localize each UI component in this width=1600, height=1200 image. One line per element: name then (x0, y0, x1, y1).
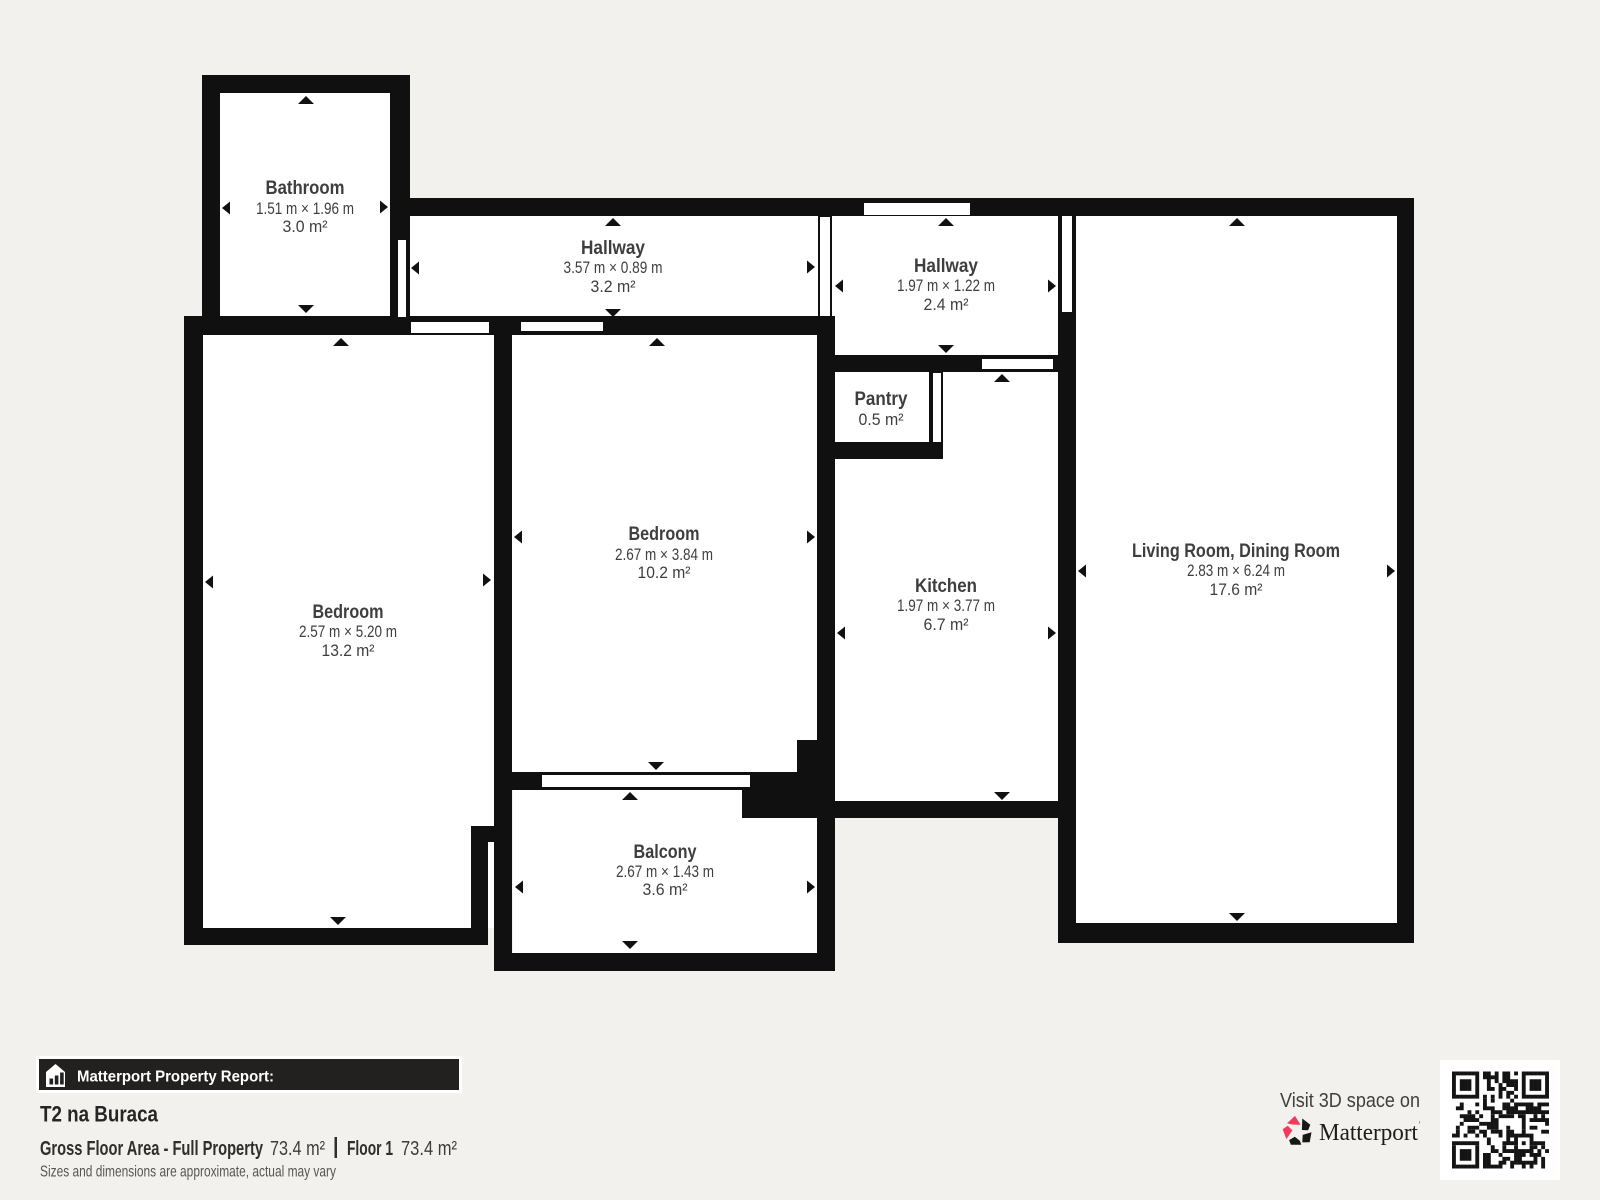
svg-text:2.4 m²: 2.4 m² (924, 296, 969, 314)
svg-text:3.57 m × 0.89 m: 3.57 m × 0.89 m (564, 259, 663, 277)
svg-text:17.6 m²: 17.6 m² (1210, 581, 1263, 599)
svg-text:Balcony: Balcony (634, 842, 697, 863)
svg-text:Kitchen: Kitchen (915, 576, 977, 597)
svg-text:Visit 3D space on: Visit 3D space on (1280, 1090, 1420, 1112)
svg-text:10.2 m²: 10.2 m² (638, 564, 691, 582)
svg-text:3.0 m²: 3.0 m² (283, 218, 328, 236)
svg-text:Sizes and dimensions are appro: Sizes and dimensions are approximate, ac… (40, 1164, 336, 1181)
svg-text:Hallway: Hallway (581, 238, 645, 259)
svg-text:Matterport: Matterport (1319, 1120, 1418, 1146)
svg-text:Floor 1: Floor 1 (347, 1138, 393, 1160)
svg-text:2.67 m × 1.43 m: 2.67 m × 1.43 m (616, 863, 714, 881)
svg-text:1.51 m × 1.96 m: 1.51 m × 1.96 m (256, 200, 354, 218)
svg-text:2.83 m × 6.24 m: 2.83 m × 6.24 m (1187, 562, 1285, 580)
svg-text:73.4 m²: 73.4 m² (270, 1138, 325, 1160)
svg-text:2.67 m × 3.84 m: 2.67 m × 3.84 m (615, 546, 713, 564)
svg-text:1.97 m × 1.22 m: 1.97 m × 1.22 m (897, 277, 995, 295)
svg-text:1.97 m × 3.77 m: 1.97 m × 3.77 m (897, 597, 995, 615)
svg-text:2.57 m × 5.20 m: 2.57 m × 5.20 m (299, 623, 397, 641)
svg-text:3.6 m²: 3.6 m² (643, 881, 688, 899)
svg-text:Gross Floor Area - Full Proper: Gross Floor Area - Full Property (40, 1138, 264, 1160)
svg-text:Matterport Property Report:: Matterport Property Report: (77, 1069, 274, 1086)
svg-text:Bedroom: Bedroom (313, 602, 384, 623)
svg-text:13.2 m²: 13.2 m² (322, 642, 375, 660)
svg-text:0.5 m²: 0.5 m² (859, 411, 904, 429)
svg-text:6.7 m²: 6.7 m² (924, 616, 969, 634)
svg-text:T2 na Buraca: T2 na Buraca (40, 1102, 159, 1127)
svg-text:Bedroom: Bedroom (629, 524, 700, 545)
svg-text:Pantry: Pantry (855, 389, 908, 410)
svg-text:73.4 m²: 73.4 m² (401, 1138, 457, 1160)
svg-text:Bathroom: Bathroom (266, 178, 345, 199)
svg-text:3.2 m²: 3.2 m² (591, 278, 636, 296)
svg-text:Living Room, Dining Room: Living Room, Dining Room (1132, 541, 1340, 562)
svg-text:Hallway: Hallway (914, 256, 978, 277)
